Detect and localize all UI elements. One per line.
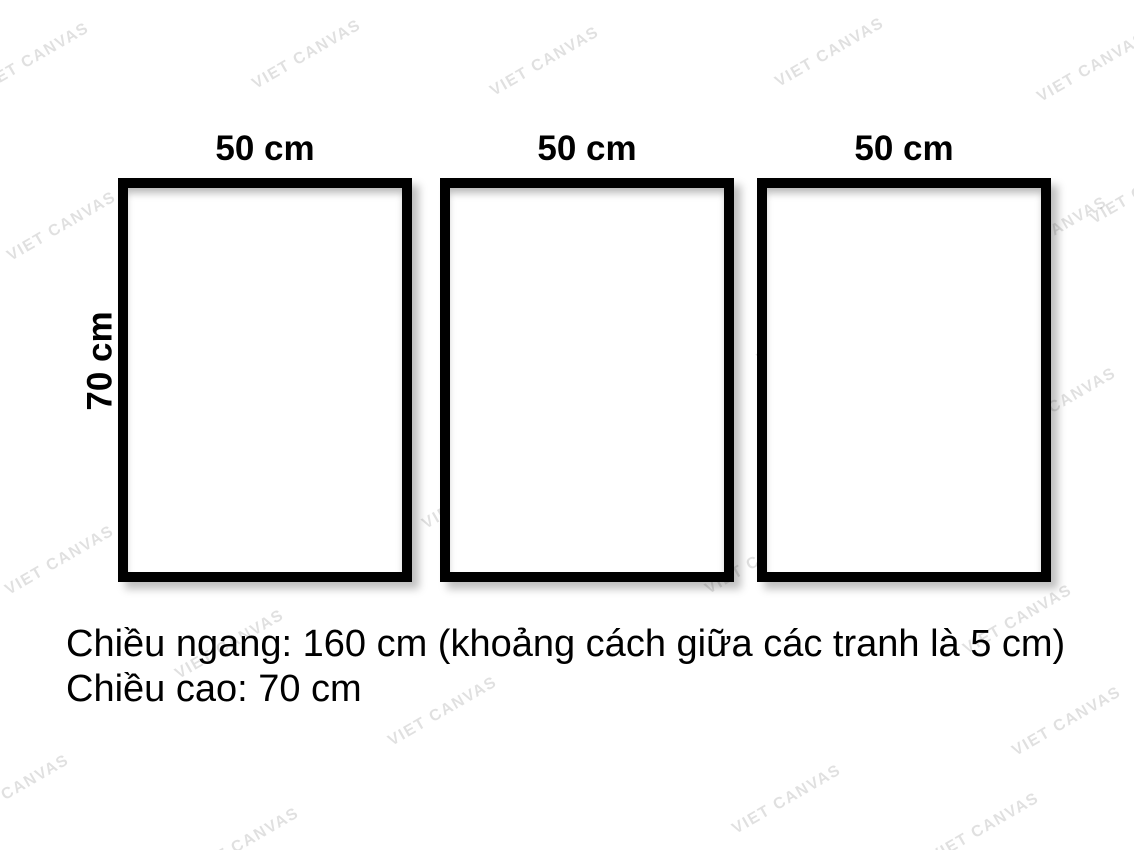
watermark-text: VIET CANVAS <box>249 16 364 93</box>
watermark-text: VIET CANVAS <box>1034 29 1134 106</box>
width-label-right: 50 cm <box>804 131 1004 166</box>
caption-line-1: Chiều ngang: 160 cm (khoảng cách giữa cá… <box>66 622 1065 667</box>
watermark-text: VIET CANVAS <box>4 188 119 265</box>
watermark-text: VIET CANVAS <box>927 789 1042 850</box>
height-label: 70 cm <box>83 311 118 410</box>
dimension-diagram: VIET CANVASVIET CANVASVIET CANVASVIET CA… <box>0 0 1134 850</box>
watermark-text: VIET CANVAS <box>1087 151 1134 228</box>
frame-right <box>757 178 1051 582</box>
watermark-text: VIET CANVAS <box>729 761 844 838</box>
caption-line-2: Chiều cao: 70 cm <box>66 667 1065 712</box>
watermark-text: VIET CANVAS <box>772 14 887 91</box>
watermark-text: VIET CANVAS <box>0 751 73 828</box>
watermark-text: VIET CANVAS <box>487 23 602 100</box>
frame-center <box>440 178 734 582</box>
width-label-left: 50 cm <box>165 131 365 166</box>
frame-left <box>118 178 412 582</box>
watermark-text: VIET CANVAS <box>187 804 302 850</box>
watermark-text: VIET CANVAS <box>0 19 93 96</box>
caption: Chiều ngang: 160 cm (khoảng cách giữa cá… <box>66 622 1065 712</box>
watermark-text: VIET CANVAS <box>2 522 117 599</box>
width-label-center: 50 cm <box>487 131 687 166</box>
